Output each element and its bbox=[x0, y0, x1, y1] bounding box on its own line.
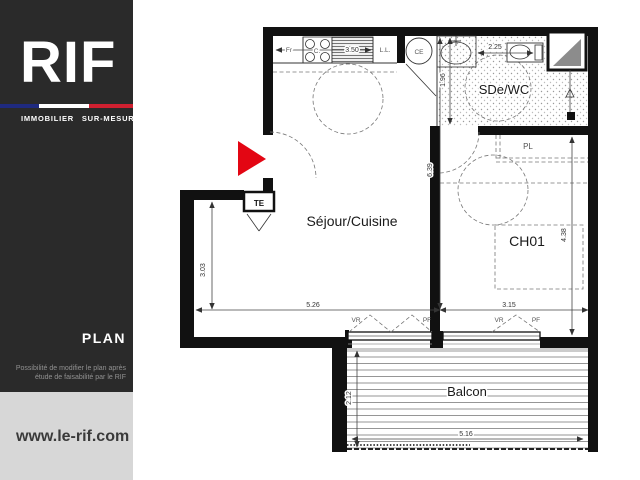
closet-outline bbox=[440, 135, 588, 183]
label-pf-living: PF bbox=[423, 317, 431, 324]
dim-bedroom-height: 4.38 bbox=[561, 228, 568, 242]
technical-shaft bbox=[548, 32, 586, 70]
label-washer: L.L. bbox=[380, 47, 391, 54]
closet-door-line bbox=[406, 64, 436, 96]
dim-living-height: 6.39 bbox=[427, 163, 434, 177]
dim-balcony-depth: 2.12 bbox=[346, 391, 353, 405]
dim-living-left: 3.03 bbox=[200, 263, 207, 277]
floor-plan: Séjour/Cuisine SDe/WC CH01 Balcon PL TE … bbox=[0, 0, 640, 480]
label-cooktop: C. bbox=[314, 48, 321, 55]
entrance-marker-icon bbox=[238, 141, 266, 176]
label-living-room: Séjour/Cuisine bbox=[306, 213, 397, 229]
label-electrical-panel: TE bbox=[254, 199, 265, 208]
dim-shower-width: 2.25 bbox=[488, 44, 502, 51]
dim-balcony-width: 5.16 bbox=[459, 431, 473, 438]
dim-living-width: 5.26 bbox=[306, 302, 320, 309]
label-vr-living: VR bbox=[351, 317, 360, 324]
dim-bedroom-width: 3.15 bbox=[502, 302, 516, 309]
bedroom-window bbox=[443, 315, 540, 344]
turning-circle-kitchen bbox=[313, 64, 383, 134]
turning-circle-bedroom bbox=[458, 155, 528, 225]
label-pf-bedroom: PF bbox=[532, 317, 540, 324]
label-balcony: Balcon bbox=[447, 384, 487, 399]
dim-shower-depth: 1.96 bbox=[440, 73, 447, 87]
label-vr-bedroom: VR bbox=[494, 317, 503, 324]
kitchen-counter bbox=[273, 37, 436, 96]
label-shower-room: SDe/WC bbox=[479, 82, 530, 97]
entrance-door-arc bbox=[270, 132, 316, 178]
bedroom-door-arc bbox=[438, 132, 479, 173]
label-fridge: Fr bbox=[286, 47, 293, 54]
toilet bbox=[507, 43, 543, 62]
label-water-heater: CE bbox=[414, 49, 424, 56]
electrical-panel bbox=[244, 192, 274, 231]
balcony-threshold bbox=[347, 348, 588, 352]
label-closet: PL bbox=[523, 142, 533, 151]
dim-kitchen-run: 3.50 bbox=[345, 47, 359, 54]
label-bedroom: CH01 bbox=[509, 233, 545, 249]
